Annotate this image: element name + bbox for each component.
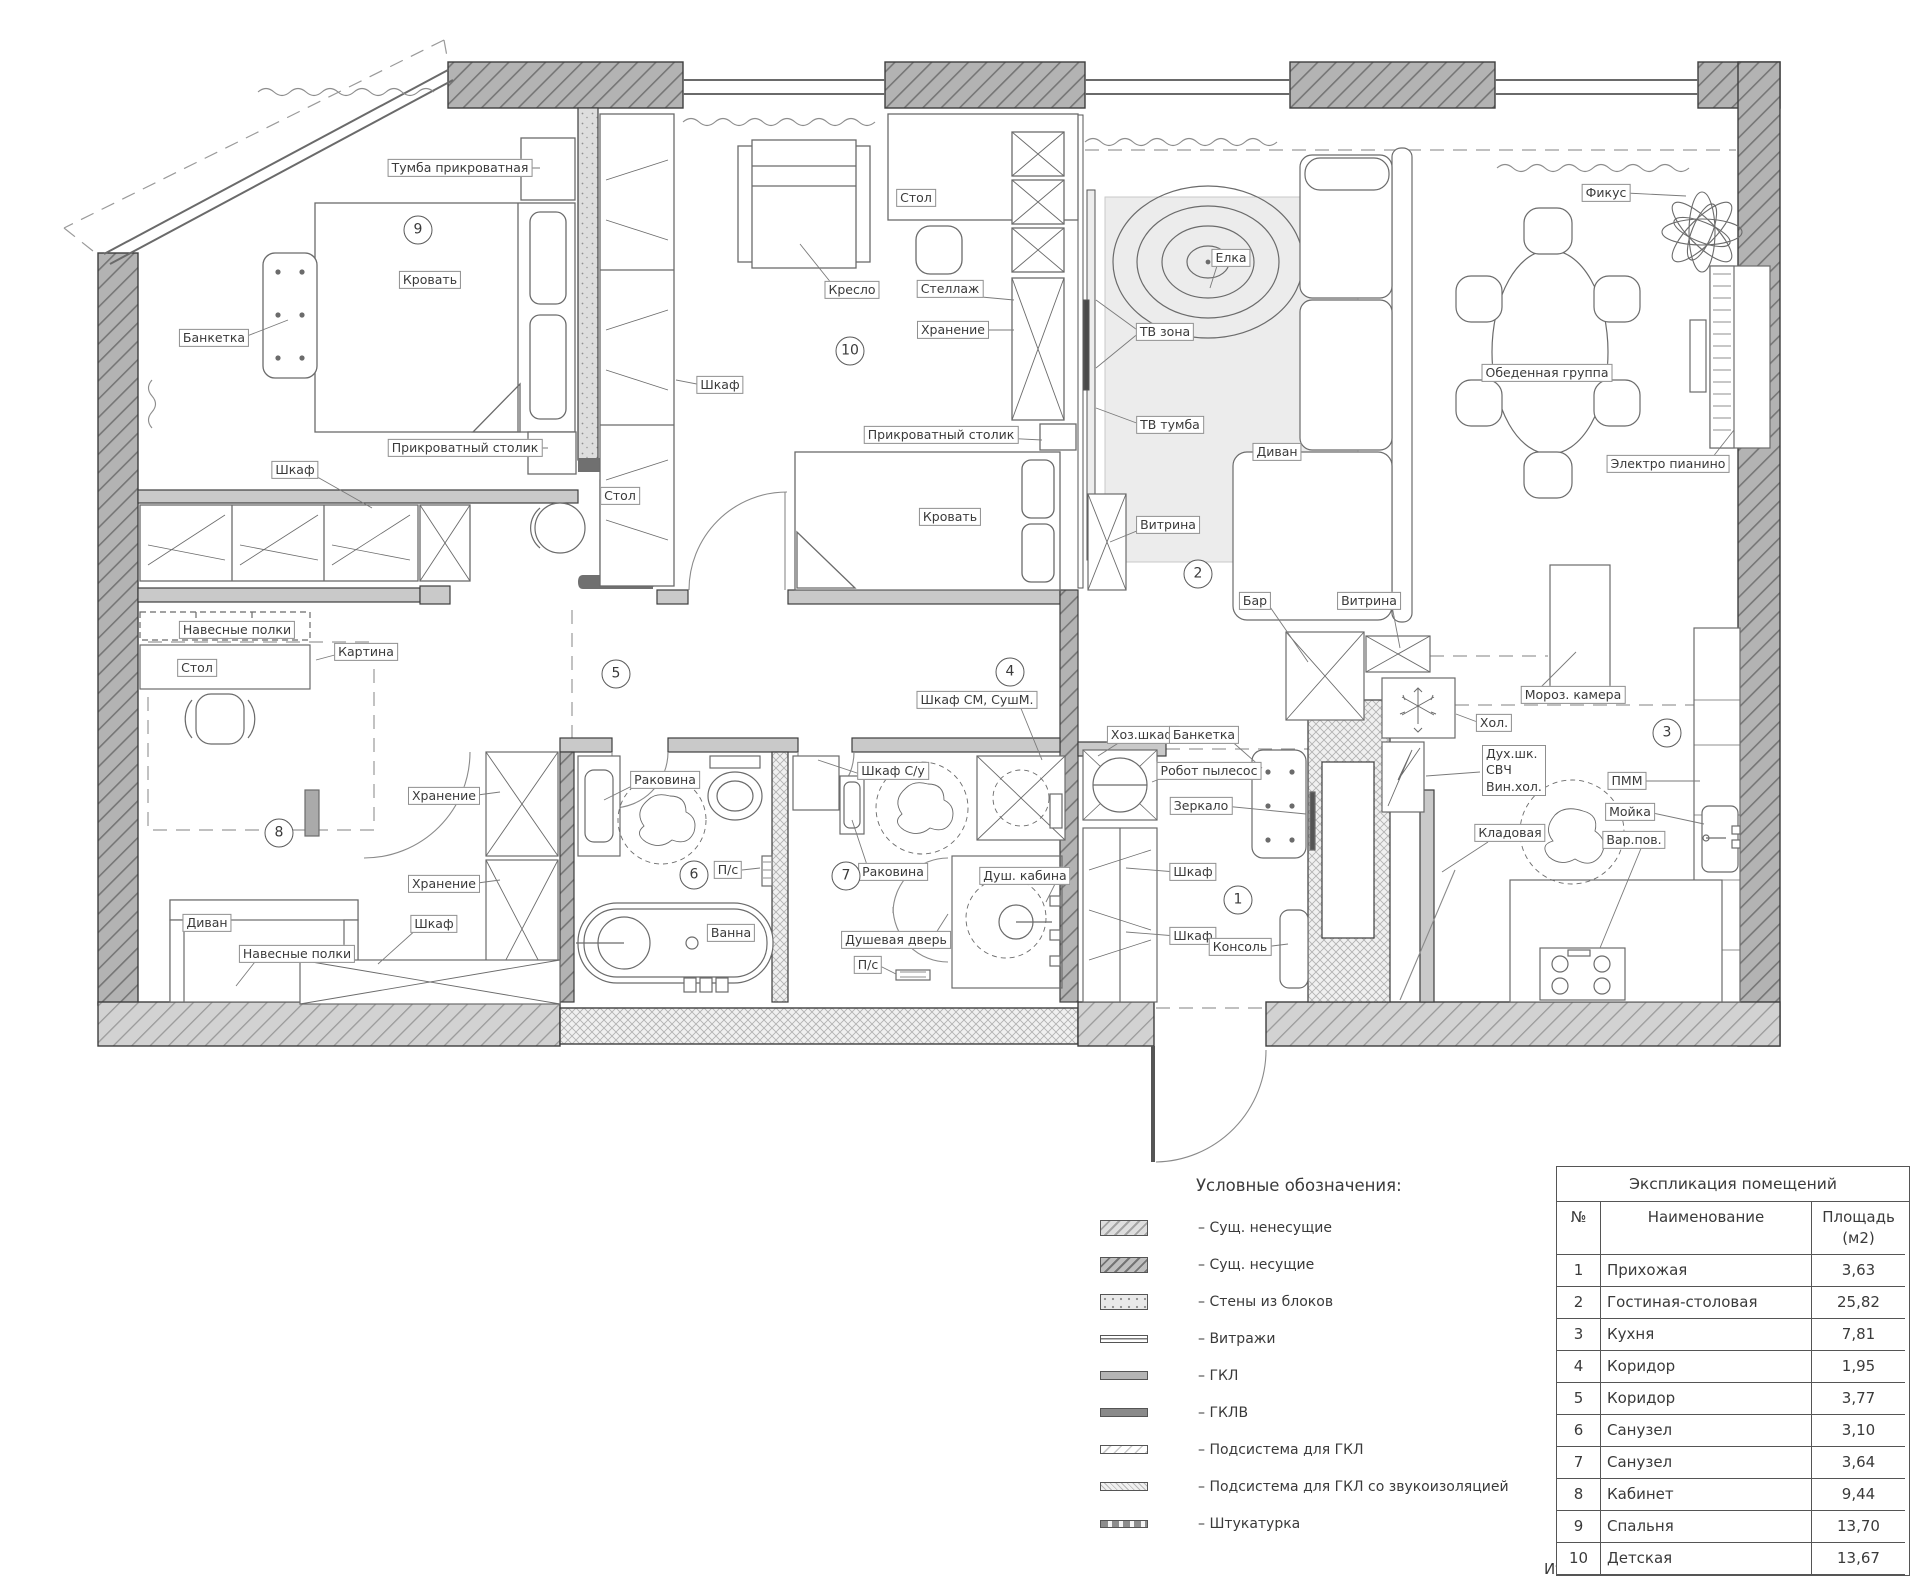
- legend-swatch-existing-bearing: [1100, 1257, 1148, 1273]
- table-row: 3: [1557, 1319, 1601, 1351]
- label-navesnye-polki-top: Навесные полки: [179, 621, 295, 639]
- legend-swatch-block-walls: [1100, 1294, 1148, 1310]
- legend-swatch-existing-nonbearing: [1100, 1220, 1148, 1236]
- label-kartina: Картина: [334, 643, 398, 661]
- label-krovat-10: Кровать: [919, 508, 981, 526]
- table-row: 8: [1557, 1479, 1601, 1511]
- label-obedennaya-gruppa: Обеденная группа: [1482, 364, 1613, 382]
- legend-item: – Штукатурка: [1100, 1505, 1540, 1542]
- label-shkaf-8: Шкаф: [410, 915, 457, 933]
- label-khranenie-10: Хранение: [917, 321, 989, 339]
- legend-item: – Подсистема для ГКЛ со звукоизоляцией: [1100, 1468, 1540, 1505]
- label-konsol: Консоль: [1209, 938, 1272, 956]
- legend-item: – Витражи: [1100, 1320, 1540, 1357]
- label-rakovina-6: Раковина: [630, 771, 700, 789]
- label-stol-10: Стол: [896, 189, 936, 207]
- label-ps-6: П/с: [714, 861, 742, 879]
- table-row: 2: [1557, 1287, 1601, 1319]
- room-number-10: 10: [836, 337, 865, 366]
- label-shkaf-sm: Шкаф СМ, СушМ.: [916, 691, 1037, 709]
- room-number-7: 7: [832, 862, 861, 891]
- table-row: 6: [1557, 1415, 1601, 1447]
- legend-swatch-gkl-subsystem: [1100, 1445, 1148, 1454]
- legend-swatch-gklv: [1100, 1408, 1148, 1417]
- label-bar: Бар: [1239, 592, 1271, 610]
- legend-swatch-plaster: [1100, 1520, 1148, 1528]
- label-prikrovatny-stolik-10: Прикроватный столик: [864, 426, 1019, 444]
- room-number-3: 3: [1653, 719, 1682, 748]
- table-row: 5: [1557, 1383, 1601, 1415]
- label-dush-kabina: Душ. кабина: [979, 867, 1070, 885]
- label-pmm: ПММ: [1608, 772, 1647, 790]
- legend-item: – Стены из блоков: [1100, 1283, 1540, 1320]
- label-krovat-9: Кровать: [399, 271, 461, 289]
- room-number-2: 2: [1184, 560, 1213, 589]
- label-tumba-prikrovatnaya: Тумба прикроватная: [388, 159, 533, 177]
- label-kladovaya: Кладовая: [1474, 824, 1545, 842]
- col-header-num: №: [1557, 1202, 1601, 1255]
- legend: Условные обозначения: – Сущ. ненесущие –…: [1100, 1176, 1540, 1542]
- room-number-6: 6: [680, 861, 709, 890]
- label-khranenie-a: Хранение: [408, 787, 480, 805]
- label-rakovina-7: Раковина: [858, 863, 928, 881]
- label-shkaf-9: Шкаф: [271, 461, 318, 479]
- label-shkaf-1a: Шкаф: [1169, 863, 1216, 881]
- label-shkaf-su: Шкаф С/у: [857, 762, 929, 780]
- col-header-name: Наименование: [1601, 1202, 1811, 1255]
- label-divan-8: Диван: [182, 914, 231, 932]
- label-banketka-1: Банкетка: [1169, 726, 1239, 744]
- legend-item: – Сущ. ненесущие: [1100, 1209, 1540, 1246]
- label-moroz-kamera: Мороз. камера: [1521, 686, 1626, 704]
- label-vitrina-bar: Витрина: [1337, 592, 1401, 610]
- label-stol-nook: Стол: [600, 487, 640, 505]
- room-number-5: 5: [602, 660, 631, 689]
- room-number-4: 4: [996, 658, 1025, 687]
- floor-plan-canvas: Тумба прикроватная Кровать Банкетка Прик…: [0, 0, 1920, 1577]
- table-row: 9: [1557, 1511, 1601, 1543]
- table-title: Экспликация помещений: [1557, 1167, 1909, 1202]
- label-banketka-9: Банкетка: [179, 329, 249, 347]
- room-number-1: 1: [1224, 886, 1253, 915]
- label-fikus: Фикус: [1582, 184, 1631, 202]
- label-vitrina-tv: Витрина: [1136, 516, 1200, 534]
- label-ps-7: П/с: [854, 956, 882, 974]
- room-number-8: 8: [265, 819, 294, 848]
- label-dushevaya-dver: Душевая дверь: [841, 931, 951, 949]
- col-header-area: Площадь (м2): [1811, 1202, 1905, 1255]
- legend-title: Условные обозначения:: [1196, 1176, 1540, 1195]
- label-stellazh: Стеллаж: [917, 280, 984, 298]
- label-khol: Хол.: [1476, 714, 1512, 732]
- label-prikrovatny-stolik-9: Прикроватный столик: [388, 439, 543, 457]
- label-moyka: Мойка: [1605, 803, 1655, 821]
- label-stol-8: Стол: [177, 659, 217, 677]
- label-divan-2: Диван: [1252, 443, 1301, 461]
- label-vanna: Ванна: [707, 924, 755, 942]
- legend-item: – Подсистема для ГКЛ: [1100, 1431, 1540, 1468]
- legend-swatch-glazing: [1100, 1335, 1148, 1343]
- label-tv-zona: ТВ зона: [1136, 323, 1194, 341]
- bathroom6-fixtures: [576, 756, 773, 992]
- label-robot-pylesos: Робот пылесос: [1157, 762, 1262, 780]
- label-var-pov: Вар.пов.: [1602, 831, 1665, 849]
- table-row: 7: [1557, 1447, 1601, 1479]
- label-elka: Елка: [1211, 249, 1250, 267]
- piano: [1690, 266, 1770, 448]
- label-elektro-pianino: Электро пианино: [1607, 455, 1730, 473]
- label-khranenie-b: Хранение: [408, 875, 480, 893]
- table-row: 1: [1557, 1255, 1601, 1287]
- legend-swatch-gkl: [1100, 1371, 1148, 1380]
- label-tv-tumba: ТВ тумба: [1136, 416, 1204, 434]
- bedroom9-furniture: [140, 138, 576, 581]
- ficus-plant: [1662, 192, 1742, 272]
- legend-swatch-gkl-soundproof: [1100, 1482, 1148, 1491]
- legend-item: – ГКЛВ: [1100, 1394, 1540, 1431]
- label-kreslo: Кресло: [824, 281, 879, 299]
- table-row: 4: [1557, 1351, 1601, 1383]
- label-navesnye-polki-8: Навесные полки: [239, 945, 355, 963]
- label-dukh-shk: Дух.шк. СВЧ Вин.хол.: [1482, 745, 1546, 796]
- label-shkaf-10: Шкаф: [696, 376, 743, 394]
- legend-item: – ГКЛ: [1100, 1357, 1540, 1394]
- table-row: 10: [1557, 1543, 1601, 1575]
- room-explication-table: Экспликация помещений № Наименование Пло…: [1556, 1166, 1910, 1576]
- label-zerkalo: Зеркало: [1170, 797, 1233, 815]
- legend-item: – Сущ. несущие: [1100, 1246, 1540, 1283]
- room-number-9: 9: [404, 216, 433, 245]
